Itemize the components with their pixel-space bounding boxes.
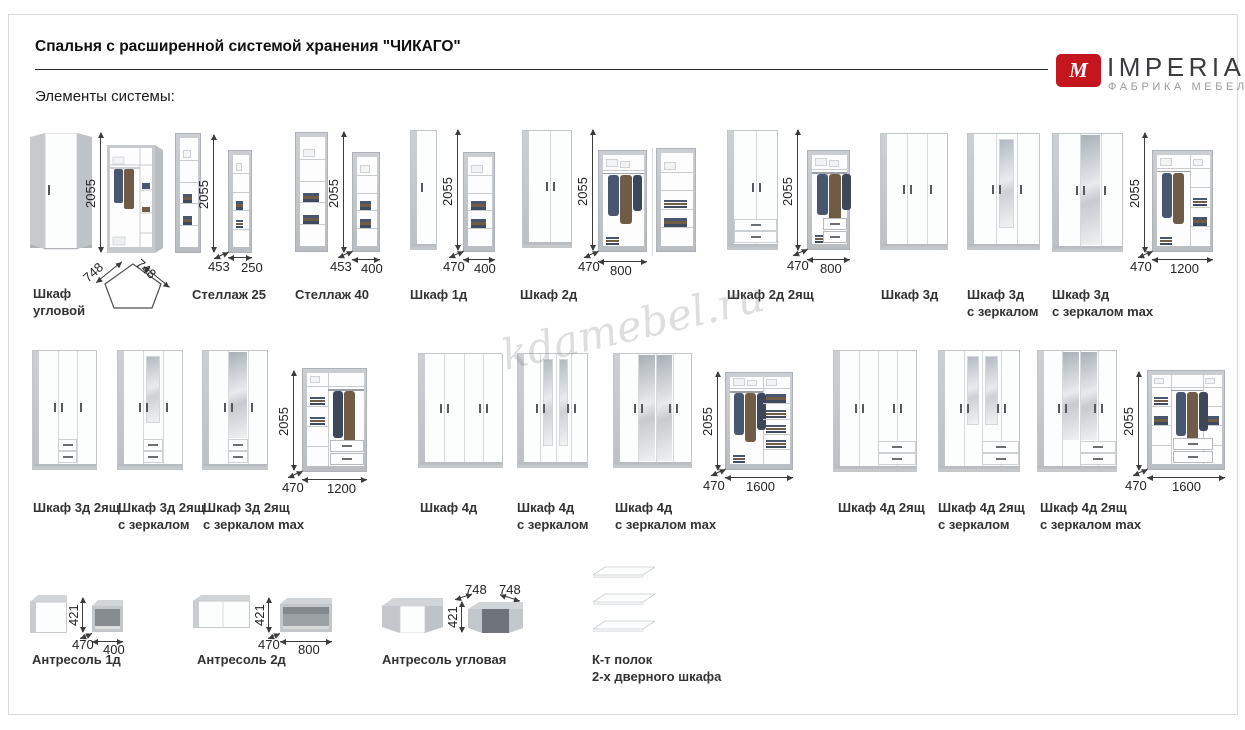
figure-part [766, 379, 777, 386]
dim-line-height [797, 130, 798, 250]
figure-part [614, 354, 620, 462]
figure-part [1173, 173, 1184, 224]
dim-height-label: 2055 [1127, 179, 1142, 208]
figure-part [1093, 458, 1103, 460]
figure-part [830, 223, 840, 225]
figure-part [1038, 351, 1044, 466]
figure-graphic [107, 145, 163, 253]
figure-part [1076, 186, 1078, 195]
figure-part [999, 185, 1001, 194]
figure-part [661, 190, 693, 191]
figure-part [1093, 446, 1103, 448]
figure-part [939, 351, 945, 466]
figure-part [543, 359, 553, 446]
figure-part [1152, 445, 1171, 446]
dim-line-height [343, 132, 344, 252]
figure-part [606, 243, 619, 245]
figure-part [829, 160, 839, 167]
figure-part [300, 159, 325, 160]
figure-part [1152, 406, 1171, 407]
figure-part [471, 165, 483, 173]
figure-part [77, 351, 78, 464]
figure-part [1020, 185, 1022, 194]
figure-part [148, 456, 158, 458]
figure-part [63, 456, 73, 458]
figure-part [224, 403, 226, 412]
figure-part [1053, 134, 1059, 246]
dim-line-width [352, 259, 380, 260]
figure-graphic [280, 598, 332, 632]
item-label: Шкаф [33, 286, 71, 301]
dim-height-label: 2055 [440, 177, 455, 206]
dim-depth-label: 470 [443, 259, 465, 274]
figure-part [1187, 392, 1198, 441]
figure-part [669, 404, 671, 413]
item-label: Шкаф 2д [520, 287, 577, 302]
figure-part [759, 183, 761, 192]
figure-part [842, 174, 851, 210]
figure-part [862, 404, 864, 413]
figure-part [310, 403, 325, 405]
figure-part [730, 388, 790, 389]
figure-graphic [380, 598, 443, 633]
item-label: Шкаф 3д [881, 287, 938, 302]
figure-part [1154, 403, 1168, 405]
dim-line-width [228, 257, 252, 258]
figure-part [166, 403, 168, 412]
figure-part [1154, 378, 1164, 384]
figure-part [608, 175, 619, 217]
item-label: Шкаф 4д [615, 500, 672, 515]
figure-part [419, 462, 502, 467]
figure-shkaf-2d2-open [807, 150, 850, 250]
dim-height-label: 421 [445, 606, 460, 628]
figure-part [992, 185, 994, 194]
figure-shkaf-4d2-open [1147, 370, 1225, 470]
figure-part [523, 242, 571, 247]
figure-part [1160, 243, 1172, 245]
figure-part [1162, 173, 1172, 219]
figure-part [80, 403, 82, 412]
figure-shkaf-3d2-open [302, 368, 367, 472]
figure-part [1160, 158, 1172, 166]
figure-shkaf-4d-closed [418, 353, 503, 468]
dim-line-width [463, 259, 495, 260]
figure-part [633, 175, 642, 211]
figure-part [464, 354, 465, 462]
figure-part [903, 185, 905, 194]
figure-shkaf-2d-open-hang [598, 150, 647, 252]
dim-depth-label: 470 [258, 637, 280, 652]
figure-part [733, 461, 745, 463]
figure-part [815, 158, 827, 166]
figure-part [907, 134, 908, 244]
item-label: Антресоль 1д [32, 652, 121, 667]
figure-part [233, 456, 243, 458]
figure-part [1176, 392, 1186, 437]
dim-line-height [268, 598, 269, 632]
logo-monogram: M [1069, 58, 1088, 83]
figure-antresol-1d-open [92, 600, 123, 632]
figure-part [61, 403, 63, 412]
figure-part [892, 446, 902, 448]
dim-width-label: 800 [298, 642, 320, 657]
dim-height-label: 2055 [780, 177, 795, 206]
figure-part [1017, 134, 1018, 244]
figure-part [751, 236, 761, 238]
dim-height-label: 2055 [83, 179, 98, 208]
figure-part [1199, 392, 1208, 431]
figure-part [964, 351, 965, 466]
figure-part [968, 134, 974, 244]
figure-part [342, 445, 352, 447]
dim-line-height [100, 133, 101, 252]
figure-part [766, 446, 786, 448]
figure-part [1101, 404, 1103, 413]
dim-line-height [592, 130, 593, 250]
figure-part [927, 134, 928, 244]
divider-line [652, 148, 653, 255]
figure-shkaf-1d-closed [410, 130, 437, 250]
page-title: Спальня с расширенной системой хранения … [35, 38, 461, 56]
item-label: Шкаф 4д [420, 500, 477, 515]
figure-part [419, 354, 425, 462]
item-label: с зеркалом [967, 304, 1039, 319]
figure-part [1063, 352, 1079, 440]
figure-part [307, 386, 364, 387]
figure-part [180, 160, 198, 161]
item-label: К-т полок [592, 652, 652, 667]
figure-part [146, 356, 159, 423]
item-label: Шкаф 4д [517, 500, 574, 515]
figure-part [1004, 404, 1006, 413]
dim-height-label: 421 [252, 604, 267, 626]
figure-part [233, 192, 249, 193]
dim-line-height [213, 135, 214, 252]
item-label: Антресоль угловая [382, 652, 506, 667]
figure-part [468, 175, 492, 176]
dim-depth-label: 470 [282, 480, 304, 495]
figure-part [559, 359, 569, 446]
figure-part [985, 356, 998, 425]
figure-part [1193, 159, 1203, 166]
figure-part [661, 172, 693, 173]
figure-part [471, 207, 486, 209]
figure-part [307, 426, 328, 427]
figure-part [411, 131, 417, 244]
dim-height-label: 2055 [326, 179, 341, 208]
figure-part [1053, 246, 1122, 251]
figure-part [1081, 352, 1097, 440]
figure-part [661, 209, 693, 210]
figure-part [606, 159, 618, 167]
figure-part [834, 466, 916, 471]
dim-line-width [1152, 259, 1213, 260]
figure-graphic [593, 566, 655, 636]
figure-shkaf-2d-closed [522, 130, 572, 248]
figure-part [357, 210, 377, 211]
figure-part [614, 462, 691, 467]
dim-height-label: 2055 [575, 177, 590, 206]
figure-part [1152, 425, 1171, 426]
figure-part [183, 222, 192, 224]
figure-part [486, 404, 488, 413]
figure-part [468, 228, 492, 229]
figure-part [892, 458, 902, 460]
item-label: Шкаф 4д 2ящ [838, 500, 925, 515]
figure-part [766, 431, 786, 433]
figure-part [300, 181, 325, 182]
figure-part [357, 193, 377, 194]
figure-part [146, 403, 148, 412]
figure-part [967, 356, 980, 425]
figure-part [303, 221, 319, 223]
figure-part [881, 244, 947, 249]
item-label: с зеркалом [517, 517, 589, 532]
figure-part [763, 403, 790, 404]
figure-part [468, 193, 492, 194]
title-rule [35, 69, 1048, 70]
figure-part [233, 229, 249, 230]
dim-width-label: 1200 [327, 481, 356, 496]
logo-tagline: ФАБРИКА МЕБЕЛИ [1108, 81, 1245, 93]
figure-part [360, 225, 371, 227]
figure-part [300, 224, 325, 225]
figure-shkaf-3d-mirror-closed [967, 133, 1040, 250]
figure-part [1190, 187, 1210, 188]
dim-width-label: 1600 [1172, 479, 1201, 494]
dim-depth-label: 470 [787, 258, 809, 273]
dim-width-label: 1200 [1170, 261, 1199, 276]
figure-part [440, 404, 442, 413]
figure-part [231, 403, 233, 412]
item-label: Стеллаж 25 [192, 287, 266, 302]
dim-line-width [302, 479, 367, 480]
figure-part [999, 139, 1015, 228]
dim-line-width [1147, 477, 1225, 478]
figure-part [248, 351, 249, 464]
figure-part [550, 131, 551, 242]
figure-shkaf-uglovoy-open [107, 145, 163, 253]
figure-part [893, 404, 895, 413]
dim-depth-label: 470 [72, 637, 94, 652]
figure-part [236, 163, 242, 171]
figure-part [1065, 404, 1067, 413]
dim-line-height [1144, 133, 1145, 252]
figure-part [483, 354, 484, 462]
figure-part [1157, 168, 1210, 169]
figure-part [536, 404, 538, 413]
figure-part [900, 404, 902, 413]
figure-part [603, 170, 644, 171]
figure-part [634, 404, 636, 413]
figure-part [817, 174, 828, 215]
figure-part [1104, 186, 1106, 195]
figure-part [303, 149, 315, 157]
figure-part [829, 174, 841, 222]
figure-part [747, 380, 757, 386]
dim-width-label: 400 [361, 261, 383, 276]
dim-height-label: 421 [66, 604, 81, 626]
item-label: Шкаф 3д [1052, 287, 1109, 302]
figure-part [556, 354, 557, 462]
figure-part [118, 351, 124, 464]
figure-part [33, 464, 96, 469]
figure-graphic [468, 602, 523, 633]
figure-part [518, 462, 587, 467]
figure-part [118, 464, 182, 469]
figure-shkaf-2d2-closed [727, 130, 778, 250]
figure-shkaf-3d-open [1152, 150, 1213, 252]
figure-part [444, 354, 445, 462]
item-label: Шкаф 3д 2ящ [118, 500, 205, 515]
figure-part [1171, 390, 1203, 392]
figure-part [620, 175, 632, 224]
figure-part [910, 185, 912, 194]
item-label: Стеллаж 40 [295, 287, 369, 302]
figure-graphic [30, 595, 67, 633]
dim-line-height [717, 372, 718, 470]
dim-line-width [807, 259, 850, 260]
figure-part [763, 434, 790, 435]
figure-part [620, 161, 630, 168]
figure-part [766, 416, 786, 418]
figure-part [1190, 226, 1210, 227]
figure-part [300, 202, 325, 203]
figure-part [574, 404, 576, 413]
figure-part [148, 444, 158, 446]
figure-part [180, 225, 198, 226]
figure-graphic [92, 600, 123, 632]
figure-part [830, 236, 840, 238]
figure-part [664, 206, 687, 208]
item-label: Шкаф 3д [967, 287, 1024, 302]
figure-part [229, 352, 246, 438]
figure-shkaf-4d2-closed [833, 350, 917, 472]
figure-part [233, 210, 249, 211]
figure-shkaf-3d2-mirror-closed [117, 350, 183, 470]
figure-part [310, 376, 320, 383]
dim-height-label: 2055 [1121, 407, 1136, 436]
figure-part [479, 404, 481, 413]
figure-part [855, 404, 857, 413]
figure-part [63, 444, 73, 446]
figure-part [1188, 456, 1198, 458]
figure-part [1193, 223, 1207, 225]
figure-part [411, 244, 436, 249]
dim-height-label: 2055 [196, 180, 211, 209]
dim-line-height [293, 371, 294, 470]
figure-part [664, 162, 676, 170]
figure-part [939, 466, 1019, 471]
dim-width-label: 250 [241, 260, 263, 275]
figure-part [997, 404, 999, 413]
figure-antresol-uglovaya-open [468, 602, 523, 633]
figure-part [728, 244, 777, 249]
figure-part [960, 404, 962, 413]
figure-part [1101, 134, 1102, 246]
item-label: Шкаф 3д 2ящ [33, 500, 120, 515]
figure-part [1094, 404, 1096, 413]
figure-part [664, 224, 687, 226]
figure-part [333, 391, 343, 438]
dim-depth-label: 453 [330, 259, 352, 274]
figure-part [360, 165, 370, 173]
figure-part [344, 391, 355, 443]
item-label: с зеркалом max [203, 517, 304, 532]
figure-part [468, 210, 492, 211]
figure-part [307, 406, 328, 407]
figure-part [763, 419, 790, 420]
figure-part [930, 185, 932, 194]
figure-part [1058, 404, 1060, 413]
logo-brand: IMPERIAL [1107, 52, 1245, 83]
dim-line-height [82, 598, 83, 632]
figure-part [1193, 204, 1207, 206]
dim-width-label: 1600 [746, 479, 775, 494]
dim-height-label: 2055 [700, 407, 715, 436]
figure-part [766, 400, 786, 402]
figure-part [421, 183, 423, 192]
figure-part [307, 446, 328, 447]
figure-part [236, 207, 243, 209]
figure-part [571, 354, 572, 462]
figure-antresol-1d-closed [30, 595, 67, 633]
figure-part [661, 227, 693, 228]
figure-stellazh40 [295, 132, 328, 252]
dim-line-width [725, 477, 793, 478]
figure-part [553, 182, 555, 191]
figure-part [763, 449, 790, 450]
figure-part [203, 464, 267, 469]
figure-part [603, 173, 644, 175]
figure-part [751, 224, 761, 226]
figure-part [1038, 466, 1116, 471]
figure-part [139, 403, 141, 412]
figure-antresol-2d-closed [193, 595, 250, 628]
figure-part [303, 199, 319, 201]
item-label: Шкаф 4д 2ящ [938, 500, 1025, 515]
figure-part [1083, 186, 1085, 195]
figure-part [745, 393, 756, 442]
figure-part [163, 351, 164, 464]
figure-part [1205, 378, 1215, 384]
figure-part [233, 173, 249, 174]
figure-part [1190, 207, 1210, 208]
dim-depth-label: 470 [703, 478, 725, 493]
figure-part [967, 404, 969, 413]
figure-shkaf-2d-open-shelves [656, 148, 696, 252]
item-label: Антресоль 2д [197, 652, 286, 667]
item-label: Шкаф 4д 2ящ [1040, 500, 1127, 515]
figure-part [342, 458, 352, 460]
dim-depth-label: 470 [1130, 259, 1152, 274]
figure-part [996, 134, 997, 244]
figure-part [203, 351, 209, 464]
figure-part [1157, 171, 1190, 173]
figure-shkaf-4d2-mirrormax-closed [1037, 350, 1117, 472]
dim-width-label: 800 [820, 261, 842, 276]
figure-shkaf-4d-open [725, 372, 793, 470]
section-label: Элементы системы: [35, 88, 175, 105]
item-label: 2-х дверного шкафа [592, 669, 721, 684]
figure-part [471, 225, 486, 227]
item-label: Шкаф 1д [410, 287, 467, 302]
figure-part [236, 226, 243, 228]
figure-part [1154, 422, 1168, 424]
figure-shkaf-3d2-mirrormax-closed [202, 350, 268, 470]
dim-width-label: 800 [610, 263, 632, 278]
